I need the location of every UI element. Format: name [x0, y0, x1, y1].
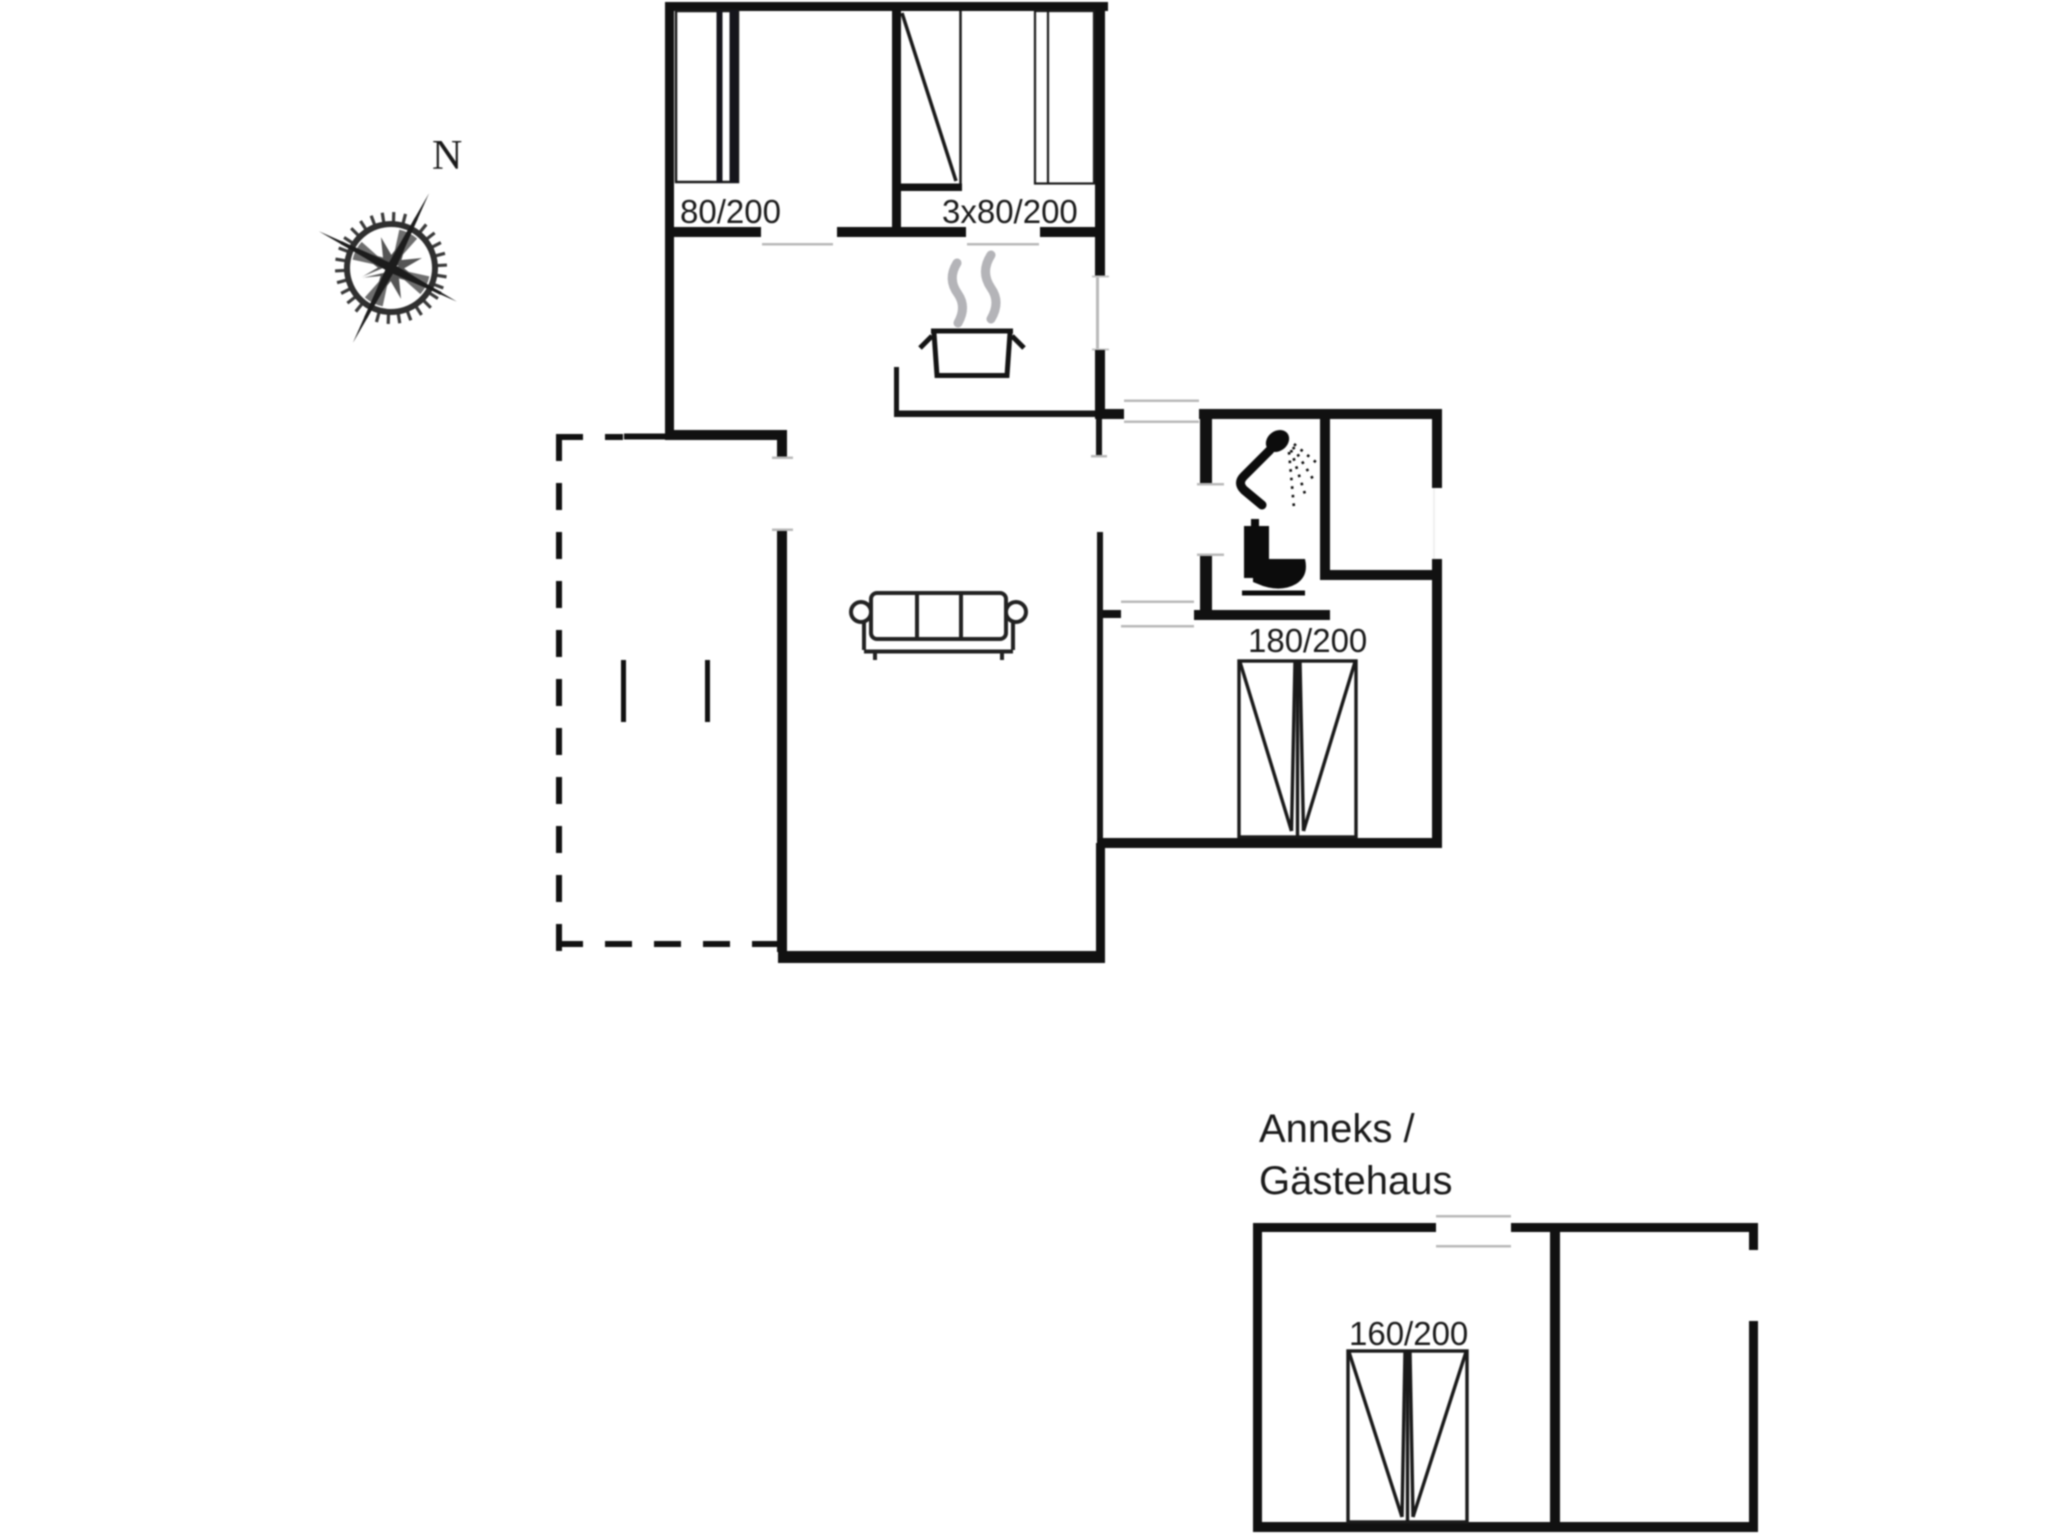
svg-text:180/200: 180/200: [1248, 622, 1367, 659]
svg-text:Anneks /: Anneks /: [1259, 1107, 1416, 1151]
svg-text:Gästehaus: Gästehaus: [1259, 1159, 1452, 1203]
svg-text:160/200: 160/200: [1349, 1315, 1468, 1352]
svg-text:80/200: 80/200: [680, 193, 781, 230]
svg-text:3x80/200: 3x80/200: [942, 193, 1078, 230]
svg-text:N: N: [432, 133, 462, 179]
